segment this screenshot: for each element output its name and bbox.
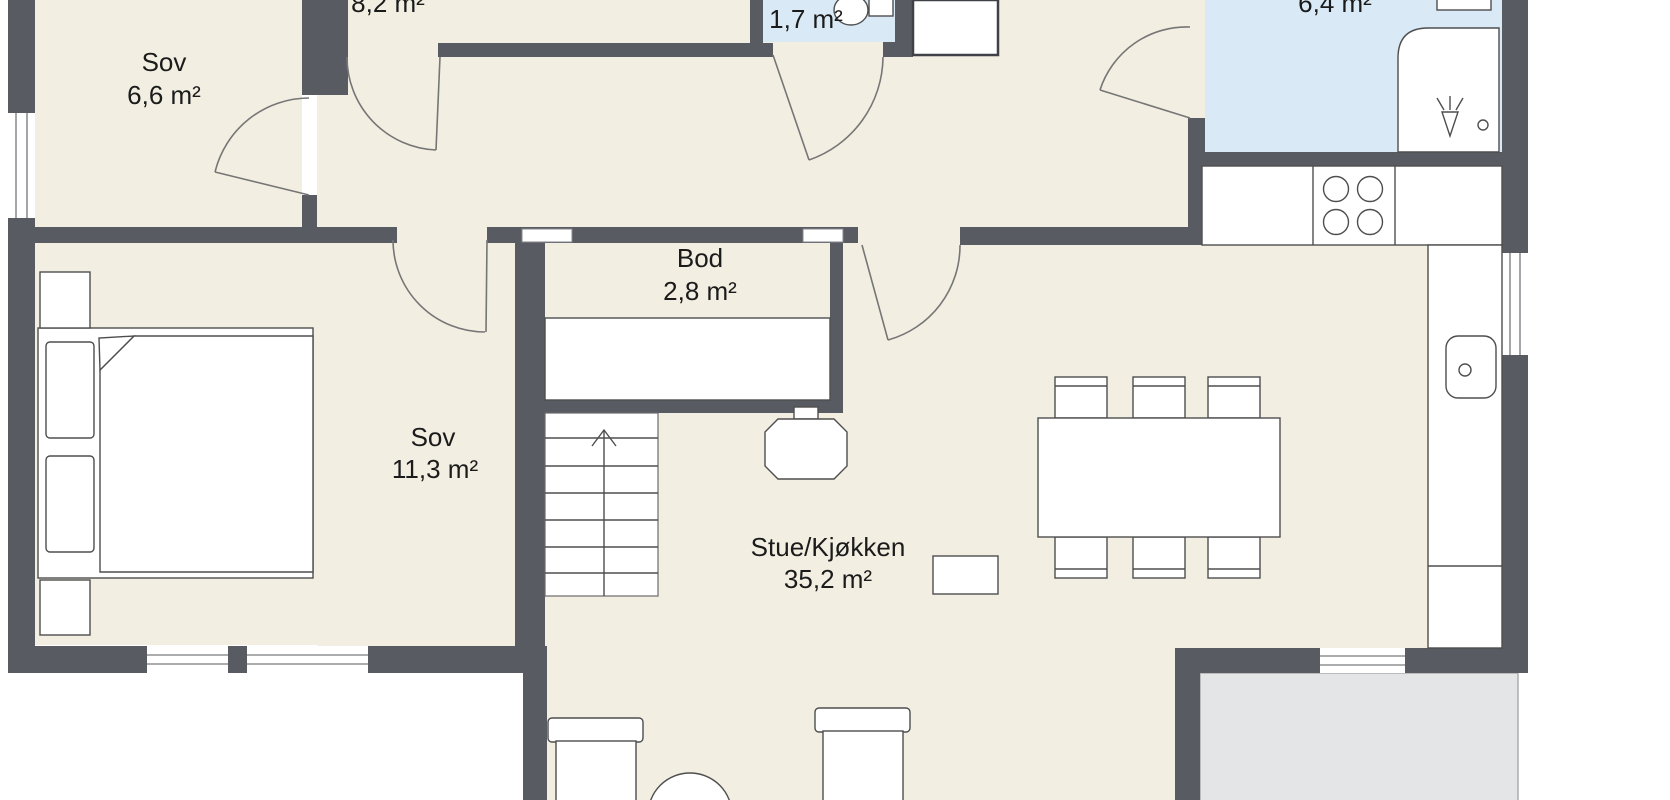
shower-icon <box>1398 28 1499 152</box>
window-left <box>8 113 35 218</box>
armchair <box>548 718 643 742</box>
wall-hall-bottom-left <box>8 227 397 243</box>
wall-bedroom-stair-divider <box>515 227 545 646</box>
label-wc-area: 1,7 m² <box>769 4 843 34</box>
dining-chair <box>1133 377 1185 418</box>
pillow <box>46 456 94 552</box>
label-sov-small-name: Sov <box>142 47 187 77</box>
label-sov-large-name: Sov <box>411 422 456 452</box>
label-sov-large-area: 11,3 m² <box>392 454 479 484</box>
label-bath-area: 6,4 m² <box>1298 0 1372 18</box>
armchair <box>815 708 910 732</box>
dining-chair <box>1208 377 1260 418</box>
window-bottom-1 <box>147 646 228 673</box>
label-stue-area: 35,2 m² <box>784 564 872 594</box>
label-bod-area: 2,8 m² <box>663 276 737 306</box>
terrace <box>1200 673 1518 800</box>
dining-chair <box>1055 377 1107 418</box>
duvet <box>100 336 313 572</box>
wall-top-pier <box>317 0 348 95</box>
dining-set <box>1038 377 1280 578</box>
wall-terrace-left <box>1175 648 1200 800</box>
label-stue-name: Stue/Kjøkken <box>751 532 906 562</box>
closet-bod <box>545 318 830 400</box>
nightstand <box>40 580 90 635</box>
armchair-seat <box>556 741 636 800</box>
dining-chair <box>1133 537 1185 578</box>
sink-icon <box>1446 336 1496 398</box>
pillow <box>46 342 94 438</box>
wall-left-exterior <box>8 0 35 673</box>
label-top-room-area: 8,2 m² <box>351 0 425 18</box>
armchair-seat <box>823 731 903 800</box>
media-bench <box>933 556 998 594</box>
stairs <box>545 413 658 596</box>
wall-bottom-right-b <box>1405 648 1528 673</box>
wall-hall-top <box>438 43 773 57</box>
floor-sov-small <box>35 0 302 227</box>
label-bod-name: Bod <box>677 243 723 273</box>
label-sov-small-area: 6,6 m² <box>127 80 201 110</box>
wall-wc-right <box>895 0 913 57</box>
terrace-sliding-door <box>1320 648 1405 673</box>
dining-chair <box>1055 537 1107 578</box>
wall-bath-bottom <box>1188 152 1528 166</box>
closet-hallway <box>913 0 998 55</box>
bod-door-leaf-right <box>803 229 843 242</box>
window-right <box>1502 253 1528 355</box>
window-bottom-2 <box>247 646 368 673</box>
wall-wc-left <box>750 0 763 43</box>
nightstand <box>40 272 90 328</box>
floor-plan-page: Sov 6,6 m² 8,2 m² 1,7 m² 6,4 m² Bod 2,8 … <box>0 0 1670 800</box>
wall-left-lower-vertical <box>523 646 547 800</box>
bath-sink-partial <box>1437 0 1491 10</box>
wall-hall-stue <box>960 227 1188 245</box>
dining-chair <box>1208 537 1260 578</box>
wall-bod-right <box>830 227 843 413</box>
bod-door-leaf-left <box>522 229 572 242</box>
dining-table <box>1038 418 1280 537</box>
wall-sov-small-right-upper <box>302 0 317 95</box>
floor-plan: Sov 6,6 m² 8,2 m² 1,7 m² 6,4 m² Bod 2,8 … <box>0 0 1670 800</box>
